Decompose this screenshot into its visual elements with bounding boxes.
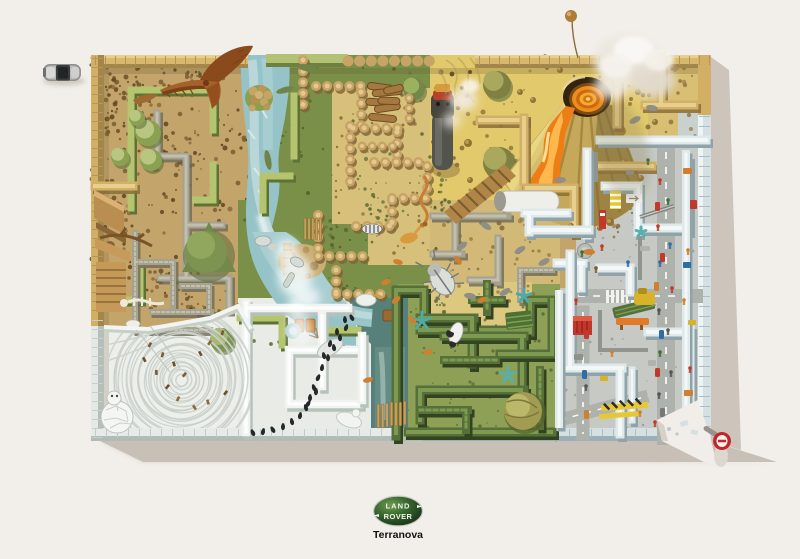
- svg-text:LAND: LAND: [386, 502, 411, 511]
- svg-text:ROVER: ROVER: [384, 512, 413, 521]
- svg-text:Terranova: Terranova: [373, 529, 423, 541]
